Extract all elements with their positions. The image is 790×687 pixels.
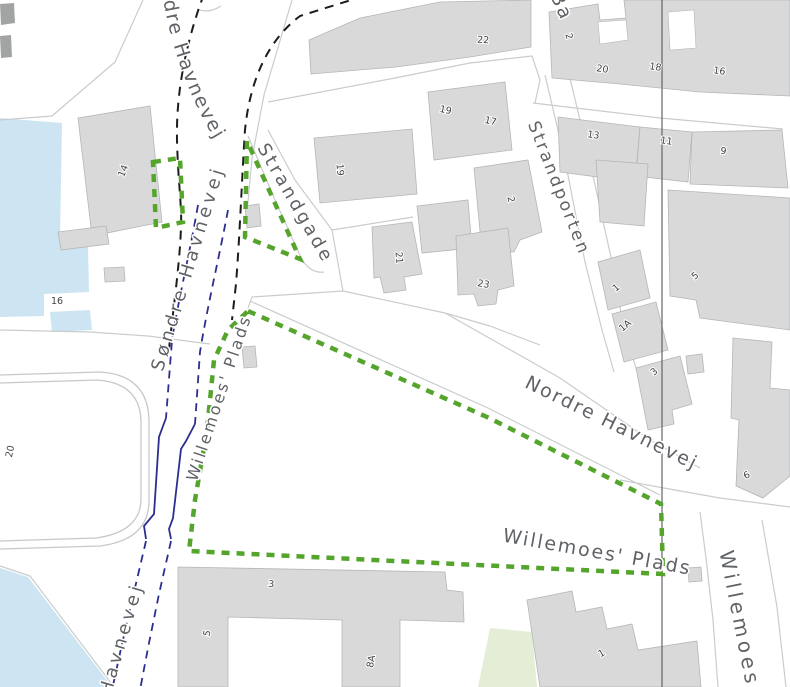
building-number-label: 19 [333,163,345,176]
building-number-label: 18 [649,61,663,74]
water-area [50,310,92,332]
building-number-label: 23 [477,278,491,291]
dark-structure [0,3,15,25]
building-number-label: 11 [660,135,674,148]
building-number-label: 20 [596,63,610,76]
building-gap [598,20,628,44]
building-number-label: 16 [713,65,727,78]
building [596,160,648,226]
building [104,267,125,282]
building-number-label: 16 [51,296,63,307]
building-gap [668,10,696,50]
map-canvas: Nordre HavnevejSøndre HavnevejStrandgade… [0,0,790,687]
map-viewport[interactable]: Nordre HavnevejSøndre HavnevejStrandgade… [0,0,790,687]
building-number-label: 3 [268,579,275,590]
building [314,129,417,203]
building [686,354,704,374]
building [428,82,512,160]
building-number-label: 13 [587,129,601,142]
building [690,130,788,188]
building-number-label: 8A [365,654,378,669]
building-number-label: 22 [477,35,490,47]
dark-structure [0,35,12,58]
building-number-label: 21 [392,251,404,264]
